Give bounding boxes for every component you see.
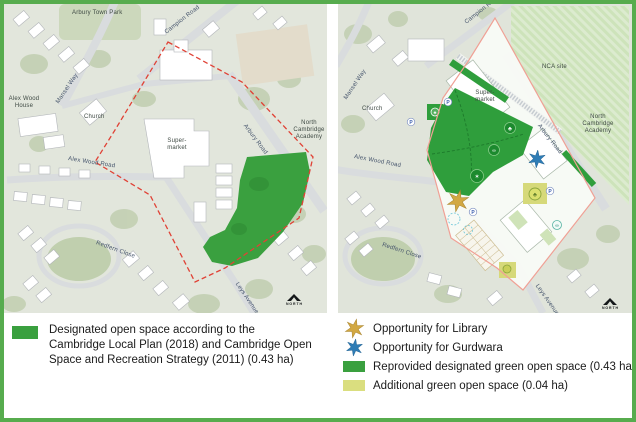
- label-nca-site: NCA site: [542, 64, 567, 71]
- north-arrow: NORTH: [602, 298, 619, 310]
- figure-frame: Arbury Town Park Campion Road Mansel Way…: [0, 0, 636, 422]
- label-north-cambridge-academy: North Cambridge Academy: [580, 114, 616, 135]
- library-star-icon: [342, 318, 366, 339]
- label-church: Church: [362, 106, 383, 113]
- legend-label: Opportunity for Gurdwara: [373, 342, 503, 354]
- north-arrow-icon: [602, 298, 618, 306]
- label-supermarket: Super-market: [470, 90, 500, 104]
- legend-masterplan: Opportunity for Library Opportunity for …: [342, 319, 636, 395]
- north-arrow-label: NORTH: [602, 306, 619, 310]
- label-church: Church: [84, 114, 105, 121]
- svg-text:♣: ♣: [533, 193, 537, 199]
- legend-line: Cambridge Local Plan (2018) and Cambridg…: [49, 338, 312, 353]
- gurdwara-star-icon: [342, 338, 366, 357]
- additional-green-swatch-cell: [342, 380, 366, 391]
- north-arrow: NORTH: [286, 294, 303, 306]
- label-alex-wood-house: Alex Wood House: [6, 96, 42, 110]
- left-map-canvas: [4, 4, 327, 313]
- legend-existing: Designated open space according to the C…: [12, 323, 332, 369]
- legend-item-gurdwara: Opportunity for Gurdwara: [342, 338, 636, 357]
- legend-label: Reprovided designated green open space (…: [373, 361, 636, 373]
- designated-open-space-label: Designated open space according to the C…: [49, 323, 312, 369]
- construction-site-patch: [236, 24, 315, 86]
- label-arbury-town-park: Arbury Town Park: [72, 10, 122, 17]
- north-arrow-icon: [286, 294, 302, 302]
- legend-item-library: Opportunity for Library: [342, 319, 636, 338]
- designated-open-space-swatch: [12, 326, 38, 339]
- additional-green-swatch: [343, 380, 365, 391]
- tree-on-green: [231, 223, 247, 235]
- label-supermarket: Super-market: [162, 138, 192, 152]
- reprovided-green-swatch-cell: [342, 361, 366, 372]
- masterplan-map: ♣ ∞ ✶ ♣ ♣ P P P P: [338, 4, 632, 313]
- label-north-cambridge-academy: North Cambridge Academy: [292, 120, 326, 141]
- legend-line: Space and Recreation Strategy (2011) (0.…: [49, 353, 312, 368]
- legend-item-additional-green: Additional green open space (0.04 ha): [342, 376, 636, 395]
- svg-text:∞: ∞: [492, 148, 496, 154]
- legend-label: Additional green open space (0.04 ha): [373, 380, 568, 392]
- north-arrow-label: NORTH: [286, 302, 303, 306]
- legend-item-reprovided-green: Reprovided designated green open space (…: [342, 357, 636, 376]
- tree-on-green: [249, 177, 269, 191]
- cycle-hub-glyph: ∞: [555, 223, 559, 229]
- existing-site-map: Arbury Town Park Campion Road Mansel Way…: [4, 4, 327, 313]
- legend-line: Designated open space according to the: [49, 323, 312, 338]
- tree-icon: [503, 265, 511, 273]
- svg-text:♣: ♣: [434, 110, 437, 115]
- reprovided-green-swatch: [343, 361, 365, 372]
- svg-text:♣: ♣: [508, 127, 512, 133]
- svg-text:✶: ✶: [474, 174, 479, 181]
- legend-label: Opportunity for Library: [373, 323, 487, 335]
